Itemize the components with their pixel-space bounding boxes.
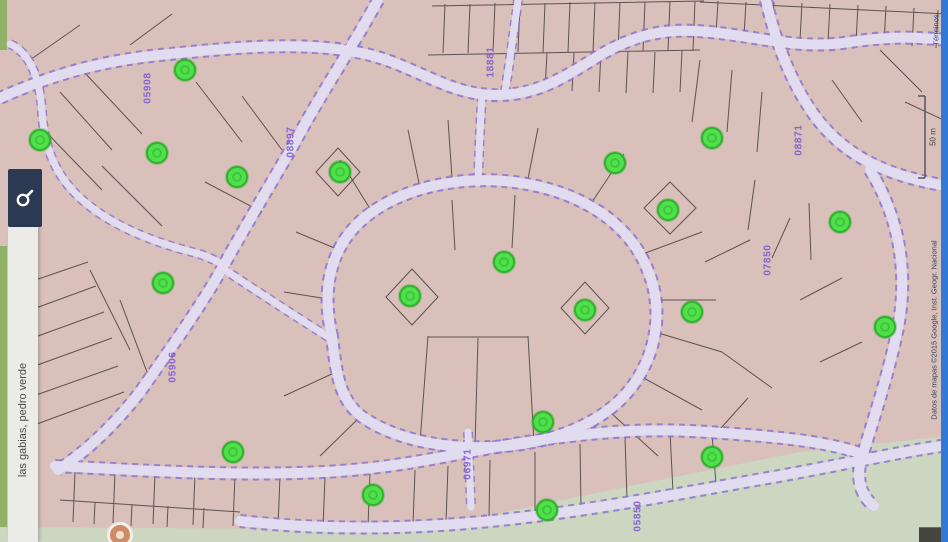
parcel-label: 08897 [286, 126, 297, 157]
search-input[interactable]: las gabias, pedro verde [8, 227, 38, 542]
poi-marker[interactable] [681, 301, 703, 323]
parcel-label: 06971 [463, 448, 474, 479]
window-edge-strip [941, 0, 948, 542]
scale-label: 50 m [929, 128, 938, 146]
parcel-label: 05906 [168, 351, 179, 382]
poi-marker[interactable] [829, 211, 851, 233]
poi-marker[interactable] [222, 441, 244, 463]
poi-marker[interactable] [574, 299, 596, 321]
poi-marker[interactable] [146, 142, 168, 164]
poi-marker[interactable] [362, 484, 384, 506]
parcel-label: 08871 [794, 124, 805, 155]
poi-marker[interactable] [493, 251, 515, 273]
poi-marker[interactable] [604, 152, 626, 174]
parcel-label: 05850 [633, 500, 644, 531]
poi-marker[interactable] [874, 316, 896, 338]
cut-off-map-control [919, 527, 941, 542]
poi-marker[interactable] [532, 411, 554, 433]
poi-marker[interactable] [399, 285, 421, 307]
poi-marker[interactable] [701, 446, 723, 468]
poi-marker[interactable] [329, 161, 351, 183]
parcel-label: 07850 [763, 244, 774, 275]
poi-marker[interactable] [701, 127, 723, 149]
map-viewport[interactable]: 0590808897188810887107850059060697105850… [0, 0, 948, 542]
search-query-text: las gabias, pedro verde [17, 363, 29, 477]
poi-marker[interactable] [29, 129, 51, 151]
poi-marker[interactable] [174, 59, 196, 81]
poi-icon-partial[interactable] [107, 522, 133, 542]
search-button[interactable] [8, 169, 42, 227]
search-icon [13, 186, 37, 210]
terms-link[interactable]: Términos [932, 14, 941, 45]
map-attribution: Datos de mapas ©2015 Google, Inst. Geogr… [930, 240, 939, 419]
parcel-label: 18881 [486, 46, 497, 77]
poi-marker[interactable] [657, 199, 679, 221]
parcel-label: 05908 [143, 72, 154, 103]
poi-marker[interactable] [226, 166, 248, 188]
poi-marker[interactable] [536, 499, 558, 521]
poi-marker[interactable] [152, 272, 174, 294]
